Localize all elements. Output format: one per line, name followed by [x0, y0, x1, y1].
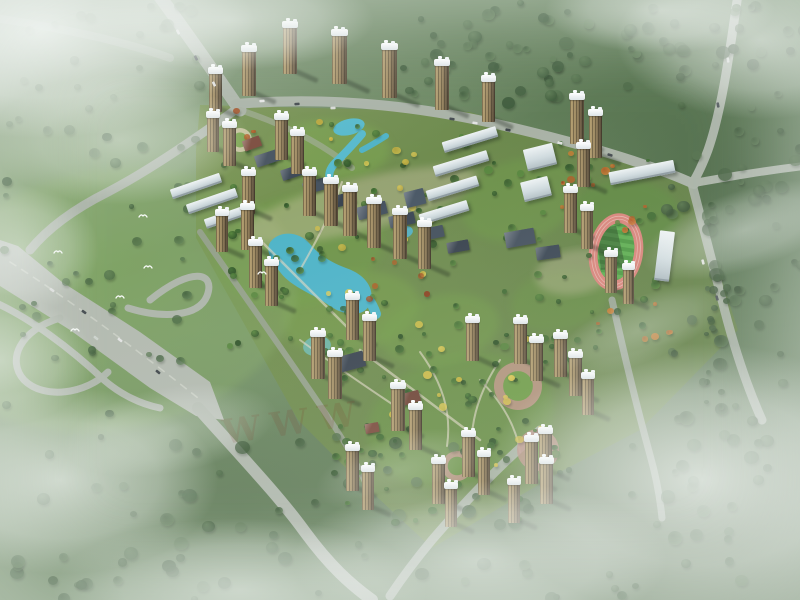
forest-topleft-tree [20, 77, 29, 85]
residential-tower [346, 298, 359, 340]
roadside-right-tree [719, 404, 725, 409]
tower-body [445, 487, 457, 527]
tower-shadow [577, 390, 599, 404]
dev-south-tree [463, 459, 470, 465]
meadow-trees-tree [156, 355, 164, 363]
tower-shadow [585, 181, 607, 195]
lowrise-slab-building [418, 199, 469, 224]
residential-tower [242, 174, 255, 214]
forest-bottom-tree [235, 522, 247, 533]
dev-central-tree [327, 333, 333, 338]
yellow-central-tree [411, 152, 417, 157]
dev-east-tree [586, 182, 591, 187]
forest-top-tree [552, 61, 564, 72]
garden-path [360, 350, 480, 440]
water-upper-stream-2 [362, 136, 386, 150]
tower-shadow [283, 154, 306, 168]
tower-roof [569, 93, 585, 100]
garden-plaza-core [448, 457, 467, 476]
forest-right-tree [709, 23, 719, 32]
forest-top-tree [632, 50, 641, 58]
tower-roof [513, 317, 528, 324]
autumn-east-tree [560, 205, 564, 209]
tower-shadow [629, 298, 649, 311]
forest-bottom-tree [98, 434, 105, 440]
forest-topleft-tree [159, 24, 166, 31]
dev-central-tree [371, 188, 377, 194]
forest-right-tree [734, 286, 741, 292]
roadside-right-tree [723, 298, 730, 304]
forest-top-tree [628, 46, 634, 52]
dev-central-tree [228, 267, 237, 275]
forest-top-tree [494, 63, 502, 70]
tower-body [223, 126, 236, 166]
forest-bottom-tree [522, 568, 533, 578]
lawn-patch [374, 283, 506, 376]
tower-shadow [486, 489, 508, 503]
dev-south-tree [346, 442, 354, 449]
dev-south-tree [342, 438, 351, 446]
forest-right-tree [702, 223, 717, 236]
forest-bottom-tree [311, 499, 319, 506]
forest-topleft-tree [85, 13, 96, 23]
yellow-central-tree [403, 237, 408, 241]
forest-top-tree [559, 37, 573, 49]
forest-topleft-tree [64, 125, 75, 135]
forest-bottom-tree [197, 581, 209, 592]
lawn-patch [351, 333, 568, 508]
dev-south-tree [492, 361, 499, 367]
forest-top-tree [648, 4, 658, 13]
forest-right-tree [679, 411, 694, 424]
tower-roof [408, 403, 423, 410]
dev-south-tree [368, 450, 377, 458]
road-approach-road [30, 108, 238, 250]
forest-right-tree [729, 295, 741, 306]
tower-body [605, 255, 617, 293]
forest-bottom-tree [124, 547, 138, 560]
forest-bottom-tree [266, 542, 278, 553]
tower-roof [366, 197, 382, 204]
car [716, 102, 719, 108]
forest-bottom-tree [697, 505, 710, 517]
dev-south-tree [345, 501, 349, 505]
autumn-east-tree [646, 168, 651, 173]
forest-bottom-tree [278, 552, 292, 565]
yellow-central-tree [329, 137, 334, 141]
autumn-mid-tree [372, 283, 378, 289]
forest-right-tree [775, 181, 789, 193]
forest-bottom-tree [355, 541, 362, 548]
tower-shadow [353, 230, 378, 245]
garden-plaza-core [233, 133, 248, 148]
residential-tower [343, 190, 357, 236]
dev-east-tree [502, 289, 507, 294]
dev-central-tree [400, 163, 406, 169]
forest-right-tree [754, 320, 764, 329]
roadside-right-tree [709, 325, 716, 332]
tower-shadow [474, 355, 496, 369]
dev-east-tree [614, 308, 622, 315]
forest-top-tree [463, 42, 472, 50]
road-south-road [198, 408, 372, 600]
lawn-patch [0, 139, 320, 461]
forest-right-tree [732, 403, 739, 410]
forest-top-tree [584, 19, 595, 29]
tower-body [569, 356, 582, 396]
tower-shadow [249, 244, 272, 258]
tower-shadow [417, 444, 440, 458]
dev-south-tree [364, 423, 371, 429]
dev-south-tree [344, 459, 350, 465]
residential-tower [332, 34, 347, 84]
car [505, 128, 511, 131]
forest-right-tree [747, 59, 759, 70]
dev-central-tree [291, 255, 299, 262]
tower-body [418, 225, 431, 269]
car [93, 335, 99, 340]
forest-bottom-tree [174, 537, 189, 550]
forest-top-tree [564, 9, 571, 15]
tower-body [362, 470, 374, 510]
commercial-roof [254, 148, 282, 167]
forest-bottom-tree [606, 571, 614, 578]
tower-body [346, 449, 359, 491]
dev-east-tree [568, 221, 576, 228]
dev-central-tree [255, 280, 263, 287]
water-upper-stream [329, 134, 362, 180]
forest-bottom-tree [74, 582, 81, 589]
dev-east-tree [484, 166, 493, 174]
tower-body [508, 483, 520, 523]
dev-south-tree [497, 450, 503, 455]
dev-east-tree [551, 335, 559, 342]
garden-plaza-ring [442, 451, 472, 481]
dev-south-tree [384, 487, 389, 491]
dev-south-tree [461, 380, 466, 385]
dev-central-tree [372, 130, 380, 137]
forest-bottom-tree [343, 478, 355, 489]
forest-bottom-tree [628, 491, 636, 498]
track-field [594, 221, 639, 284]
tower-roof [431, 457, 446, 464]
forest-top-tree [624, 24, 637, 36]
tower-body [265, 264, 278, 306]
forest-bottom-tree [760, 435, 774, 447]
dev-central-tree [329, 122, 334, 127]
tower-roof [323, 177, 339, 184]
dev-central-tree [235, 340, 242, 346]
forest-top-tree [544, 75, 553, 83]
autumn-track-south-tree [666, 330, 672, 335]
road-ramp-west [0, 302, 160, 408]
dev-east-tree [591, 153, 597, 158]
meadow-trees-tree [62, 278, 71, 286]
garden-path [472, 360, 500, 450]
dev-east-tree [596, 329, 602, 334]
fog-patch [400, 290, 800, 600]
forest-bottom-tree [369, 460, 377, 467]
dev-south-tree [510, 508, 515, 512]
commercial-roof [356, 200, 388, 220]
garden-plaza-core [525, 437, 551, 463]
car [81, 309, 87, 314]
forest-topleft-tree [136, 65, 143, 71]
dev-central-tree [221, 162, 227, 168]
forest-bottom-tree [10, 567, 24, 580]
forest-top-tree [543, 15, 554, 25]
forest-bottom-tree [119, 482, 128, 490]
forest-right-tree [713, 274, 723, 283]
tower-roof [622, 263, 635, 270]
forest-bottom-tree [725, 557, 734, 565]
autumn-track-south-tree [607, 308, 614, 314]
forest-bottom-tree [523, 504, 534, 514]
dev-east-tree [535, 294, 543, 301]
lowrise-slab-building [442, 126, 499, 153]
residential-tower [291, 134, 304, 174]
tower-body [482, 80, 495, 122]
dev-central-tree [326, 306, 333, 312]
dev-east-tree [493, 340, 499, 345]
dev-east-tree [647, 212, 656, 220]
tower-body [540, 462, 553, 504]
forest-right-tree [777, 128, 784, 134]
dev-east-tree [504, 333, 509, 337]
tower-roof [580, 204, 594, 211]
forest-topleft-tree [51, 21, 58, 27]
tower-body [283, 26, 297, 74]
autumn-nw-tree [251, 130, 255, 134]
tower-body [332, 34, 347, 84]
water-small-pond [394, 224, 414, 239]
tower-roof [581, 372, 595, 379]
tower-body [462, 435, 475, 477]
garden-path [300, 340, 392, 404]
tower-shadow [562, 371, 584, 385]
forest-top-tree [554, 65, 562, 73]
tower-body [623, 268, 634, 304]
dev-central-tree [245, 149, 251, 154]
tower-shadow [580, 138, 605, 153]
tower-roof [604, 250, 618, 257]
forest-right-tree [747, 416, 758, 426]
tower-roof [477, 450, 491, 457]
tower-shadow [589, 243, 611, 257]
residential-tower [589, 114, 602, 158]
garden-plaza-ring [228, 128, 252, 152]
forest-top-tree [430, 32, 437, 38]
tower-roof [331, 29, 348, 36]
road-highway-median [10, 262, 198, 398]
tower-shadow [440, 498, 463, 512]
meadow-trees-tree [184, 182, 191, 188]
dev-central-tree [305, 232, 314, 240]
forest-right-tree [728, 44, 739, 54]
forest-top-tree [400, 65, 407, 71]
dev-central-tree [235, 229, 241, 234]
dev-east-tree [565, 164, 573, 172]
residential-tower [409, 408, 422, 450]
forest-right-tree [734, 286, 745, 296]
dev-central-tree [251, 330, 259, 338]
forest-bottom-tree [477, 558, 491, 570]
tower-body [363, 319, 376, 361]
forest-right-tree [725, 205, 735, 214]
autumn-nw-tree [253, 139, 258, 144]
forest-top-tree [659, 37, 668, 45]
autumn-east-tree [561, 181, 566, 185]
tower-body [435, 64, 449, 110]
tower-body [393, 213, 407, 259]
forest-bottom-tree [130, 511, 137, 517]
car [176, 29, 181, 35]
tower-shadow [338, 393, 362, 407]
fog-layer [0, 0, 800, 600]
forest-topleft-tree [74, 84, 81, 90]
forest-right-tree [709, 286, 718, 294]
road-east-inner-road [612, 300, 662, 518]
dev-central-tree [351, 292, 360, 300]
tower-roof [264, 259, 279, 266]
tower-shadow [250, 208, 272, 222]
dev-south-tree [378, 453, 383, 458]
roadside-right-tree [699, 378, 707, 386]
meadow-trees-tree [129, 204, 134, 209]
residential-tower [508, 483, 520, 523]
tower-shadow [334, 220, 358, 234]
dev-east-tree [562, 275, 567, 280]
forest-bottom-tree [91, 483, 102, 493]
residential-tower [466, 321, 479, 361]
lawn-patch [452, 146, 589, 254]
car [726, 57, 729, 63]
dev-east-tree [595, 148, 600, 152]
dev-south-tree [426, 351, 432, 356]
tower-shadow [299, 168, 321, 182]
residential-tower [367, 202, 381, 248]
tower-shadow [538, 375, 560, 389]
car [155, 369, 161, 374]
residential-tower [311, 335, 325, 379]
dev-south-tree [451, 378, 458, 385]
yellow-central-tree [364, 161, 369, 166]
autumn-east-tree [622, 227, 629, 233]
meadow-trees-tree [110, 158, 121, 167]
forest-bottom-tree [113, 576, 123, 585]
terrain-base [0, 0, 800, 600]
forest-right-tree [762, 195, 772, 204]
forest-topleft-tree [194, 81, 205, 91]
dev-south-tree [479, 379, 486, 385]
dev-east-tree [640, 296, 648, 303]
tower-shadow [516, 517, 538, 531]
meadow-trees-tree [2, 177, 12, 186]
commercial-roof [535, 244, 561, 260]
dev-south-tree [356, 470, 362, 475]
meadow-trees-tree [174, 236, 183, 244]
residential-tower [324, 182, 338, 226]
forest-right-tree [734, 127, 745, 136]
dev-south-tree [413, 518, 418, 522]
dev-east-tree [574, 337, 581, 343]
autumn-east-tree [628, 218, 636, 225]
dev-south-tree [473, 343, 477, 347]
tower-roof [539, 457, 554, 464]
dev-east-tree [593, 345, 598, 350]
forest-top-tree [482, 9, 495, 21]
forest-topleft-tree [136, 31, 144, 38]
forest-bottom-tree [59, 553, 68, 561]
roadside-right-tree [707, 316, 714, 323]
dev-south-tree [417, 442, 422, 446]
dev-central-tree [296, 267, 304, 275]
meadow-trees-tree [89, 350, 96, 356]
tower-roof [538, 427, 553, 434]
garden-path [262, 242, 352, 332]
yellow-south-tree [494, 463, 499, 467]
autumn-east-tree [591, 183, 596, 187]
dev-central-tree [227, 343, 233, 349]
tower-roof [310, 330, 326, 337]
yellow-south-tree [423, 371, 432, 379]
dev-central-tree [337, 339, 344, 346]
meadow-trees-tree [85, 278, 93, 285]
meadow-trees-tree [73, 271, 79, 276]
dev-south-tree [366, 426, 374, 433]
yellow-south-tree [439, 403, 447, 411]
forest-top-tree [545, 79, 555, 88]
forest-right-tree [672, 469, 679, 475]
commercial-roof [446, 239, 470, 254]
forest-top-tree [515, 86, 527, 96]
car [117, 337, 123, 342]
fog-patch [271, 391, 529, 550]
lowrise-slab-building [425, 175, 479, 201]
cars-birds-layer [0, 0, 800, 600]
tower-shadow [533, 478, 557, 492]
tower-roof [362, 314, 377, 321]
tower-body [216, 214, 228, 252]
dev-east-tree [587, 164, 594, 170]
tower-roof [481, 75, 496, 82]
autumn-east-tree [643, 205, 647, 209]
forest-topleft-tree [110, 94, 117, 100]
tower-body [539, 432, 552, 474]
forest-topleft-tree [35, 84, 43, 91]
residential-tower [525, 440, 538, 484]
forest-right-tree [668, 348, 676, 355]
residential-tower [564, 191, 577, 233]
forest-top-tree [642, 22, 654, 33]
tower-roof [282, 21, 298, 28]
tower-body [311, 335, 325, 379]
dev-east-tree [646, 159, 650, 163]
dev-east-tree [652, 277, 660, 284]
tower-body [242, 50, 256, 96]
forest-top-tree [468, 31, 482, 44]
residential-tower [223, 126, 236, 166]
tower-roof [563, 186, 578, 193]
forest-right-tree [718, 168, 733, 181]
residential-tower [462, 435, 475, 477]
dev-south-tree [395, 345, 404, 353]
dev-south-tree [404, 389, 413, 397]
tower-body [328, 355, 342, 399]
forest-bottom-tree [519, 560, 530, 570]
roadside-right-tree [708, 318, 716, 325]
commercial-roof [419, 225, 445, 242]
